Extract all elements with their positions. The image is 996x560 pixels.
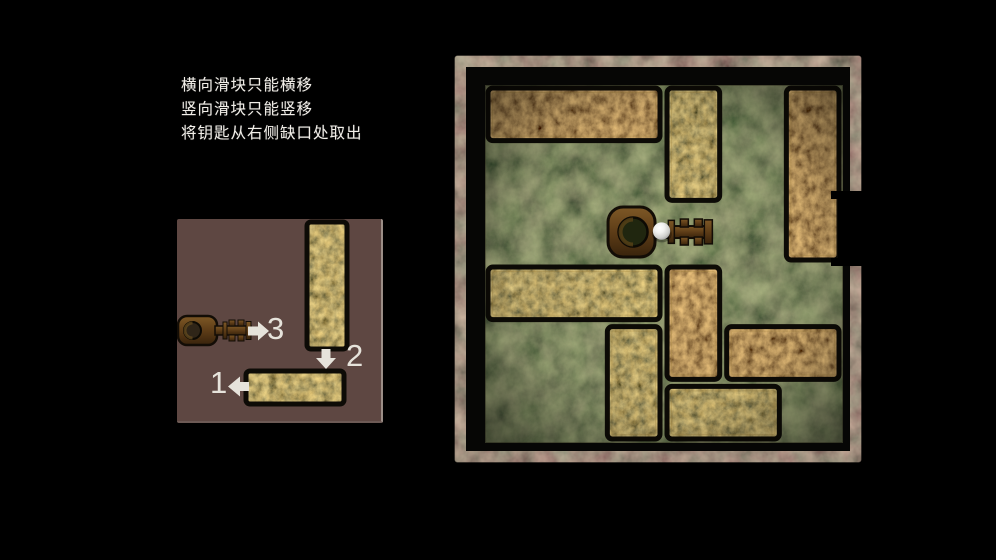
hint-step-2: 2 — [346, 340, 363, 371]
instructions: 横向滑块只能横移 竖向滑块只能竖移 将钥匙从右侧缺口处取出 — [181, 74, 363, 145]
hint-horizontal-slider — [246, 371, 344, 404]
hint-vertical-slider — [307, 222, 347, 349]
playfield-vignette — [485, 85, 843, 443]
hint-panel: 3 2 1 — [177, 219, 383, 423]
white-ball-marker — [653, 222, 670, 239]
puzzle-board — [454, 55, 862, 463]
hint-step-1: 1 — [210, 367, 227, 398]
instruction-line-2: 竖向滑块只能竖移 — [181, 98, 363, 122]
hint-key-icon — [178, 316, 251, 345]
instruction-line-3: 将钥匙从右侧缺口处取出 — [181, 122, 363, 146]
game-screen: 横向滑块只能横移 竖向滑块只能竖移 将钥匙从右侧缺口处取出 — [0, 0, 996, 560]
arrow-down-icon — [316, 349, 336, 369]
hint-step-3: 3 — [267, 313, 284, 344]
instruction-line-1: 横向滑块只能横移 — [181, 74, 363, 98]
